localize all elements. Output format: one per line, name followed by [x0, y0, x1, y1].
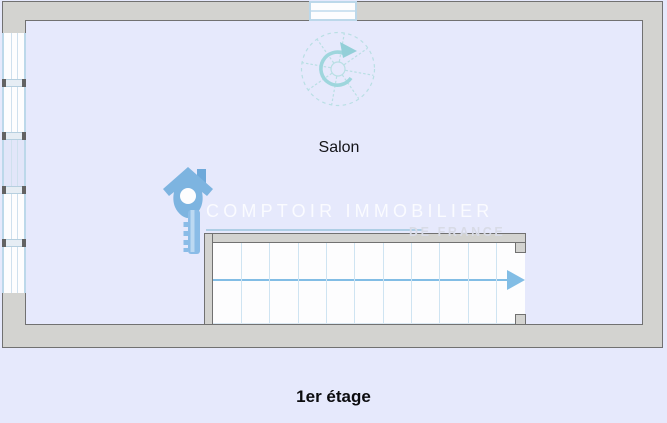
window-pane	[4, 247, 24, 293]
top-window	[309, 1, 357, 21]
window-divider	[4, 239, 24, 247]
window-pane	[4, 87, 24, 133]
stair-tread-line	[439, 242, 440, 323]
stair-tread-line	[326, 242, 327, 323]
left-window	[2, 33, 26, 293]
stair-tread-line	[496, 242, 497, 323]
spiral-staircase-icon	[299, 28, 377, 108]
window-glass-line	[11, 33, 12, 293]
floor-label: 1er étage	[0, 387, 667, 407]
stair-direction-arrow-icon	[507, 270, 525, 290]
window-divider	[4, 186, 24, 194]
stair-tread-line	[241, 242, 242, 323]
stair-treads	[213, 242, 525, 324]
stair-tread-line	[354, 242, 355, 323]
stair-tread-line	[468, 242, 469, 323]
spiral-arrow-icon	[340, 42, 357, 58]
stair-wall-hook-top	[515, 242, 526, 253]
window-divider	[4, 79, 24, 87]
stair-tread-line	[298, 242, 299, 323]
stair-tread-line	[411, 242, 412, 323]
top-window-glazing-line	[311, 10, 355, 12]
watermark-brand: COMPTOIR IMMOBILIER	[206, 201, 494, 222]
stair-tread-line	[269, 242, 270, 323]
stair-wall-stub-bottom	[515, 314, 526, 325]
watermark-underline	[206, 229, 422, 231]
window-pane	[4, 140, 24, 186]
window-pane	[4, 33, 24, 79]
window-pane	[4, 194, 24, 240]
floor-plan-canvas: Salon COMPTOIR IMMOBILIER DE FRANCE 1er …	[0, 0, 667, 423]
stair-tread-line	[383, 242, 384, 323]
window-glass-line	[17, 33, 18, 293]
window-divider	[4, 132, 24, 140]
watermark-subbrand: DE FRANCE	[409, 225, 500, 239]
room-label: Salon	[254, 139, 424, 157]
stair-center-line	[213, 279, 510, 281]
